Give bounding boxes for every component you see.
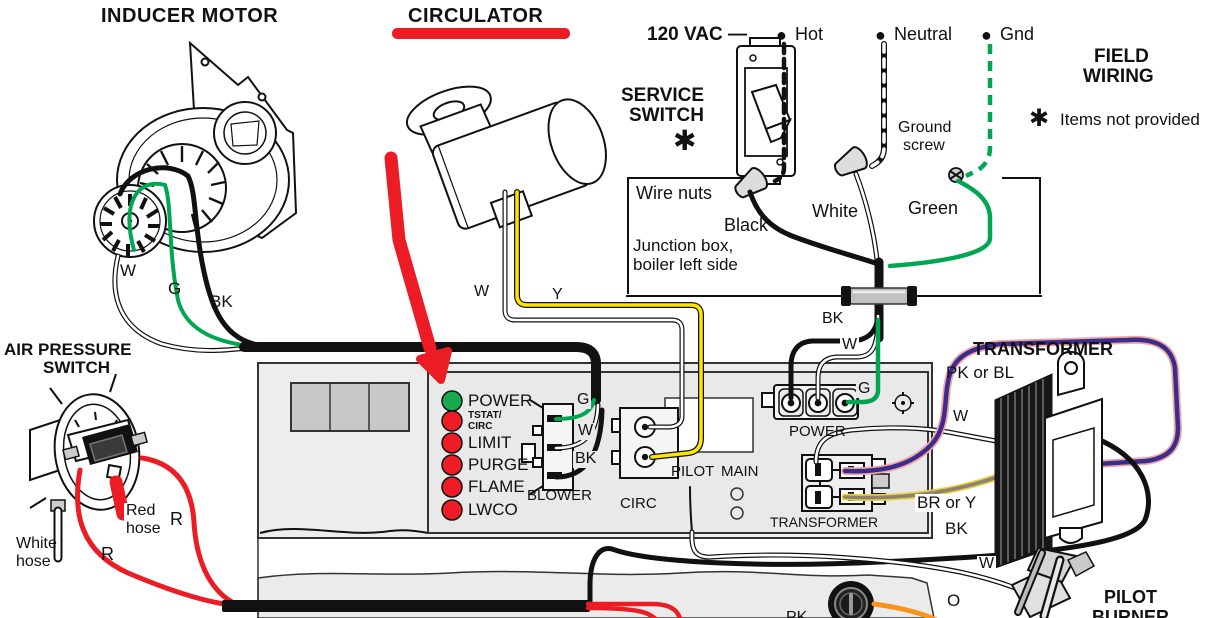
aps-r-lower-label: R (101, 545, 114, 564)
led-purge (442, 455, 462, 475)
inducer-g-label: G (168, 280, 181, 298)
transformer-drawing (995, 352, 1102, 568)
blower-bk-label: BK (573, 451, 598, 468)
service-star-icon: ✱ (673, 126, 696, 155)
circ-connector-label: CIRC (620, 496, 657, 512)
vac-label: 120 VAC — (647, 25, 747, 45)
circulator-underline (392, 28, 570, 39)
led-power (442, 391, 462, 411)
green-wire-label: Green (906, 199, 960, 218)
circulator-y-label: Y (552, 287, 563, 304)
led-flame-label: FLAME (468, 478, 525, 496)
led-purge-label: PURGE (468, 456, 528, 474)
main-label: MAIN (721, 464, 759, 480)
circulator-title: CIRCULATOR (408, 6, 543, 27)
circulator-drawing (401, 45, 620, 245)
hot-label: Hot (795, 25, 823, 44)
neutral-label: Neutral (894, 25, 952, 44)
service-switch-drawing (737, 38, 795, 184)
black-wire-label: Black (724, 216, 768, 235)
service-switch-title-2: SWITCH (629, 106, 704, 126)
gnd-label: Gnd (1000, 25, 1034, 44)
ground-screw-label-2: screw (903, 138, 945, 155)
pilot-burner-drawing (1012, 548, 1094, 617)
led-tstat-label-2: CIRC (468, 422, 492, 433)
pilot-label: PILOT (671, 464, 714, 480)
diagram-art (0, 0, 1232, 618)
wire-nuts-label: Wire nuts (636, 184, 712, 203)
hot-dot: ● (776, 26, 787, 45)
pilot-burner-title-2: BURNER (1092, 608, 1169, 618)
pk-or-bl-label: PK or BL (946, 364, 1014, 382)
gnd-dot: ● (981, 26, 992, 45)
pilot-w-label: W (977, 556, 996, 573)
white-hose-label-1: White (16, 536, 57, 553)
red-hose-label-2: hose (124, 521, 163, 538)
inducer-bk-label: BK (210, 293, 233, 311)
pilot-burner-title-1: PILOT (1104, 588, 1157, 607)
aps-r-upper-label: R (170, 510, 183, 529)
led-limit (442, 433, 462, 453)
inducer-w-label: W (120, 262, 136, 280)
aps-title-2: SWITCH (43, 359, 110, 377)
blower-w-label: W (576, 423, 595, 440)
aps-title-1: AIR PRESSURE (4, 341, 132, 359)
junction-box-caption-1: Junction box, (633, 237, 733, 255)
junction-box-caption-2: boiler left side (633, 256, 738, 274)
items-not-provided-label: Items not provided (1060, 111, 1200, 129)
red-hose-label-1: Red (124, 503, 157, 520)
transformer-bk-label: BK (943, 520, 970, 538)
wiring-diagram: INDUCER MOTOR CIRCULATOR 120 VAC — ● Hot… (0, 0, 1232, 618)
jb-bk-label: BK (820, 311, 845, 328)
neutral-dot: ● (875, 26, 886, 45)
service-switch-title-1: SERVICE (621, 86, 704, 106)
blower-connector-label: BLOWER (527, 488, 592, 504)
power-connector (762, 385, 858, 419)
circulator-w-label: W (474, 284, 489, 301)
wire-nut-white (830, 145, 870, 182)
led-limit-label: LIMIT (468, 434, 511, 452)
orange-o-label: O (947, 592, 960, 610)
cable-clamp (841, 286, 917, 306)
white-wire-label: White (810, 202, 860, 221)
jb-w-label: W (840, 337, 859, 354)
gnd-wire-dashed (966, 44, 990, 176)
bottom-trunk-cable (222, 600, 590, 612)
circ-connector (612, 408, 678, 478)
led-lwco (442, 500, 462, 520)
br-or-y-label: BR or Y (915, 494, 978, 512)
field-wiring-title-1: FIELD (1094, 47, 1149, 67)
led-tstat-circ (442, 411, 462, 431)
green-lead (890, 181, 990, 266)
led-flame (442, 477, 462, 497)
power-g-label: G (856, 381, 872, 398)
transformer-w-label: W (951, 409, 970, 426)
ground-screw-icon (949, 168, 963, 182)
led-lwco-label: LWCO (468, 501, 518, 519)
ground-screw-label-1: Ground (898, 120, 951, 137)
bottom-pk-label: PK (786, 610, 807, 618)
led-power-label: POWER (468, 392, 532, 410)
field-wiring-title-2: WIRING (1083, 67, 1154, 87)
power-connector-label: POWER (789, 424, 846, 440)
white-hose-label-2: hose (16, 554, 51, 571)
transformer-title: TRANSFORMER (973, 340, 1113, 359)
neutral-wire-striped (872, 44, 884, 166)
led-tstat-label-1: TSTAT/ (468, 411, 502, 422)
transformer-connector-label: TRANSFORMER (770, 515, 878, 530)
items-star-icon: ✱ (1029, 106, 1049, 131)
blower-g-label: G (575, 392, 591, 409)
inducer-motor-title: INDUCER MOTOR (101, 6, 278, 27)
